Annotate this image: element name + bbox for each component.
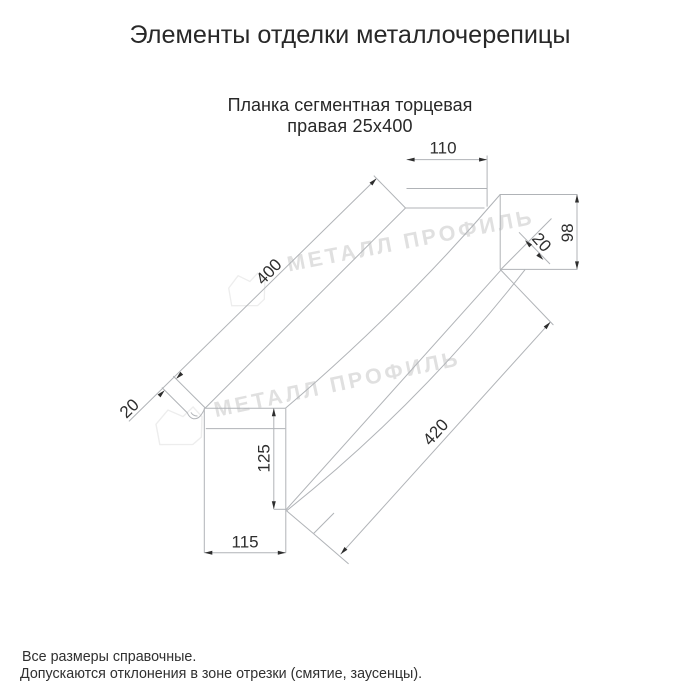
svg-text:420: 420 <box>419 415 452 449</box>
svg-text:110: 110 <box>429 139 456 158</box>
svg-text:20: 20 <box>116 395 143 422</box>
svg-text:125: 125 <box>254 444 273 472</box>
svg-text:400: 400 <box>252 255 285 289</box>
svg-text:20: 20 <box>528 229 555 256</box>
svg-text:115: 115 <box>232 533 259 552</box>
svg-text:МЕТАЛЛ ПРОФИЛЬ: МЕТАЛЛ ПРОФИЛЬ <box>285 205 536 277</box>
svg-text:98: 98 <box>558 223 577 242</box>
svg-text:МЕТАЛЛ ПРОФИЛЬ: МЕТАЛЛ ПРОФИЛЬ <box>212 346 463 422</box>
